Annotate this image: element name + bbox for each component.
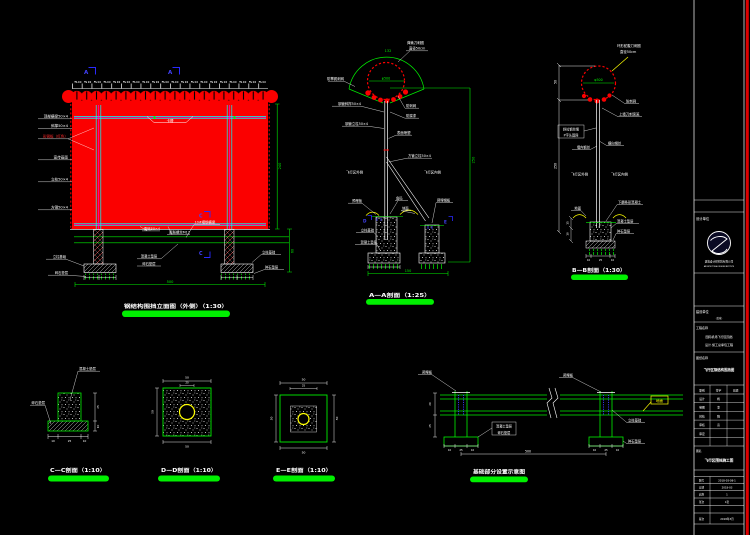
cc-label-gravel: 碎石垫层 [31,400,45,405]
sheet-border-red [746,0,749,535]
plan-fdim-3: 10 [471,448,475,452]
title-block: 设计单位 建筑设计研究院有限公司 ARCHITECTURAL DESIGN IN… [694,0,744,535]
plan-title-bar [470,477,528,483]
company-name: 建筑设计研究院有限公司 [705,260,734,264]
sign-row-value: 程 [717,414,720,418]
aa-label-outside: 飞行区外侧 [346,170,364,175]
label-channel-beam: 10#槽钢横梁 [195,220,216,225]
section-aa-drawing: 132 φ500 弹簧刀刺圈 直径50cm 防攀爬刺网 钢管斜撑50×4 钢管立… [327,40,475,305]
ee-right-value: 50 [335,417,339,421]
plan-fdim-5: 25 [604,448,608,452]
depth-dim-value: 60 [291,249,295,253]
sign-row-label: 设计 [699,397,705,401]
project-name-2: 设计·施工总承包工程 [705,342,733,347]
plan-vdim-1: 20 [428,402,432,406]
aa-pier-left [376,217,397,253]
aa-height-value: 250 [472,157,476,164]
design-unit-label: 设计单位 [696,216,710,221]
ee-title-bar [273,476,335,482]
client-sub: （盖章） [714,316,724,320]
plan-title: 基础部分设置示意图 [472,469,525,476]
ee-left-value: 50 [270,417,274,421]
aa-label-square-post: 方管立柱50×4 [408,153,431,158]
bb-label-thorn: 防刺网 [626,99,637,104]
section-marker-a2: A [168,70,173,76]
cc-bdim-1: 10 [51,439,55,443]
bb-label-wire-left: 墙内钢丝 [577,145,591,150]
plan-anchor-bolts [459,395,609,415]
meta-value: 2018-03 [722,486,733,490]
sheet-name-label: 图名 [696,449,702,453]
bb-dim-height: 250 [554,163,558,169]
label-steel-sheet: 彩钢板（红色） [43,134,68,139]
bb-label-ground: 地面 [574,206,581,211]
aa-title: A—A剖面（1:25） [369,292,431,299]
bb-coil-label-2: 直径50cm [620,49,637,54]
meta-label: 图号 [699,479,705,483]
plan-fdim-4: 10 [593,448,597,452]
plan-label-pad: 混凝土垫层 [496,424,512,429]
aa-label-inside: 飞行区内侧 [424,170,442,175]
label-corner-brace: 角码50×4 [144,226,160,231]
cc-title-bar [48,476,109,482]
cc-rdim-1: 25 [96,405,100,409]
bb-earth-ticks [586,249,615,255]
aa-label-pipe-post: 钢管立柱50×4 [345,121,368,126]
coil-end-left [62,90,75,103]
dd-inner-value: 20 [185,380,189,384]
rail-clip-1 [154,116,156,119]
sign-th-2: 签字 [716,389,722,393]
section-marker-c2-bracket [204,252,210,258]
aa-label-embed-right: 预埋钢板 [437,198,451,203]
bb-pier [590,222,611,241]
sign-row-label: 校核 [699,414,705,418]
ee-inner-dim [290,387,317,390]
meta-value: 1张 [725,500,730,504]
aa-label-embed-left: 预埋板 [352,198,363,203]
detail-ee-drawing: 50 25 50 50 50 E—E剖面（1:10） [270,378,340,482]
plan-label-gravel: 碎石垫层 [498,430,511,435]
elevation-title-bar [122,311,230,318]
cc-label-pad: 混凝土垫层 [79,366,97,371]
bb-label-outside: 飞行区外侧 [571,172,589,177]
label-footing-right: 立柱基础 [262,250,276,255]
aa-slab-right [419,253,445,263]
dd-pole-hole [180,405,195,420]
earth-ticks-left [84,274,116,280]
foundation-plan-drawing: 地面 预埋板 预埋板 混凝土垫层 碎石垫层 立柱基础 碎石垫层 20 25 10… [418,370,683,483]
label-gravel-right: 碎石垫层 [265,265,279,270]
ee-bottom-dim [280,446,327,450]
aa-marker-e: E [444,220,447,225]
coil-wire-dots [365,89,408,103]
bb-wire-box-leader [584,128,596,131]
bb-title: B—B剖面（1:30） [572,267,626,274]
aa-marker-e-bracket [449,217,453,222]
aa-earth-ticks-left [368,264,400,270]
plan-total-dim [461,452,606,456]
bb-dim-top: 50 [554,80,558,84]
detail-dd-drawing: 50 20 50 50 D—D剖面（1:10） [151,376,221,482]
elevation-drawing: 50 50 50 50 50 50 50 50 50 50 50 50 50 5… [38,68,295,318]
aa-label-pad: 混凝土垫层 [361,240,378,245]
footing-right [221,264,253,273]
plan-pad-dims [444,444,623,448]
plan-left-dims [433,393,437,437]
aa-slab-left [368,253,400,263]
section-marker-a1-bracket [89,68,96,75]
section-marker-c1: C [199,214,203,220]
label-concrete-pad: 混凝土垫层 [141,254,158,259]
ee-bottom-value: 50 [302,451,306,455]
slot-callout-label: 卡槽 [167,118,174,123]
bb-label-gravel: 碎石垫层 [617,229,631,234]
sign-th-1: 职别 [699,389,705,393]
coil-end-right [265,90,278,103]
plan-pad-leader [478,428,492,437]
aa-pier-right [425,225,439,253]
section-bb-drawing: φ500 环形蛇腹刀刺圈 直径50cm 50 250 防刺网 上墙刀刺滚笼 斜拉… [554,43,644,280]
aa-label-thorn: 防刺网 [406,103,417,108]
plan-posts [455,391,612,437]
aa-coil-label-2: 直径50cm [409,46,426,51]
dd-title-bar [158,476,220,482]
ee-top-value: 50 [302,378,306,382]
meta-value: 1 [726,493,728,497]
rail-clip-2 [234,116,236,119]
razor-coil-scallops [72,90,268,103]
dd-bottom-dim [163,440,211,444]
plan-fdim-1: 10 [448,448,452,452]
label-brace: 斜撑50×4 [51,123,69,128]
company-name-en: ARCHITECTURAL DESIGN INSTITUTE [704,265,734,268]
meta-label: 张次 [699,500,705,504]
label-anchor-bolt: 膨胀螺丝M12 [169,230,190,235]
client-label: 建设单位 [696,309,710,314]
meta-label: 比例 [699,493,705,497]
bb-label-inside: 飞行区内侧 [611,172,629,177]
section-marker-a2-bracket [173,68,180,75]
bb-bdim-1: 10 [587,258,591,262]
plan-total-value: 500 [525,450,531,454]
dd-left-dim [155,388,159,436]
bb-wire-box-1: 斜拉钢丝绳 [563,127,580,132]
aa-label-ground: 地面 [402,206,409,211]
aa-marker-d: D [363,219,367,224]
cad-canvas: 50 50 50 50 50 50 50 50 50 50 50 50 50 5… [0,0,750,535]
bb-wire-box-2: P字头固网 [564,132,579,137]
bb-label-wire-right: 横向钢丝 [608,141,622,146]
bb-slab [586,241,615,248]
cc-bdim-2: 25 [68,439,72,443]
aa-label-paint: 防腐漆 [406,113,417,118]
drawing-name-label: 图纸名称 [696,355,708,360]
plan-label-gravel2: 碎石垫层 [628,439,642,444]
plan-embed-right-leader [559,378,601,392]
aa-label-coating: 表面喷塑 [397,130,411,135]
dd-title: D—D剖面（1:10） [161,467,217,474]
found-label-leaders-4 [252,255,284,274]
aa-total-value: 150 [405,269,411,273]
plan-footing-left [444,437,478,446]
section-marker-a1: A [84,70,89,76]
plan-fdim-6: 10 [616,448,620,452]
plan-embed-left-leader [418,375,456,391]
aa-marker-d-bracket [368,216,372,221]
plan-rails [440,395,683,415]
sign-th-3: 日期 [733,389,739,393]
aa-brace [387,157,430,221]
plan-label-footing: 立柱基础 [628,418,642,423]
aa-label-climb: 防攀爬刺网 [327,76,345,81]
bb-found-dim-1: 15 [566,221,570,225]
meta-rows: 图号 2018-03-08-1 日期 2018-03 比例 1 张次 1张 版次… [699,479,736,522]
bb-pole [597,100,600,228]
aa-label-footing: 立柱基础 [361,228,375,233]
top-dim-row: 50 50 50 50 50 50 50 50 50 50 50 50 50 5… [74,80,266,84]
pier-right [225,230,235,265]
detail-cc-drawing: 混凝土垫层 碎石垫层 10 25 10 25 10 C—C剖面（1:10） [30,366,109,482]
plan-footing-right [589,437,623,446]
label-square-steel: 方钢50×4 [51,205,69,210]
project-name-1: 国际机场飞行区围挡 [705,334,732,339]
panel-height-value: 240 [278,163,282,170]
bb-dia-value: φ500 [594,78,602,82]
cc-bdim-3: 10 [83,439,87,443]
dd-bottom-value: 50 [185,445,189,449]
bb-title-bar [571,275,628,281]
bb-label-cage: 上墙刀刺滚笼 [619,112,640,117]
sign-row-value: 高 [717,423,720,427]
elevation-title: 钢结构围挡立面图（外侧）（1:30） [124,303,228,310]
sign-row-label: 审定 [699,432,705,436]
sign-row-value: 李 [717,406,720,410]
sign-row-value: 杨 [717,397,720,401]
aa-dia-value: φ500 [382,77,390,81]
bb-found-dims [569,216,573,243]
dd-top-value: 50 [185,376,189,380]
ee-title: E—E剖面（1:10） [276,467,332,474]
label-gravel-left: 碎石垫层 [55,270,69,275]
aa-coil-label-1: 弹簧刀刺圈 [407,40,425,45]
plan-ground-leader [643,402,651,411]
aa-label-corner: 角码 [396,196,403,201]
aa-earth-ticks-right [419,264,445,270]
footing-left [84,264,116,273]
bb-found-dim-2: 10 [566,232,570,236]
sign-row-label: 制图 [699,406,705,410]
company-logo [708,232,731,255]
bb-bdim-2: 25 [599,258,603,262]
cc-strip [48,421,88,431]
sign-row-label: 审核 [699,423,705,427]
aa-label-brace: 钢管斜撑50×4 [338,101,361,106]
plan-vdim-2: 25 [428,424,432,428]
sheet-name: 飞行区围挡施工图 [705,458,734,463]
ee-inner-value: 25 [302,383,306,387]
cc-block [58,393,81,421]
ee-left-dim [274,395,278,442]
ground-beam [74,237,289,243]
label-footing-left: 立柱基础 [53,254,67,259]
label-post: 立柱50×4 [51,177,69,182]
dd-inner-dim [180,384,194,387]
label-top-beam: 顶部横梁50×4 [44,114,69,119]
aa-title-bar [366,299,434,305]
label-gravel-pad: 碎石垫层 [142,261,156,266]
bb-bdim-3: 10 [611,258,615,262]
bb-label-strip: 下翻条形混凝土 [618,200,642,205]
cc-rdim-2: 10 [96,425,100,429]
label-banner: 宣传画面 [54,155,69,160]
meta-label: 日期 [699,486,705,490]
ee-pole-hole [298,414,309,425]
dd-left-value: 50 [151,410,155,414]
dim-ticks [72,84,268,89]
cad-drawing-sheet: 50 50 50 50 50 50 50 50 50 50 50 50 50 5… [0,0,750,535]
plan-label-embed-right: 预埋板 [563,373,574,378]
meta-value: 2018年3月 [720,517,734,521]
plan-label-embed-left: 预埋板 [422,370,433,375]
cc-title: C—C剖面（1:10） [50,467,106,474]
plan-fdim-2: 25 [459,448,463,452]
drawing-name: 飞行区钢结构围挡图 [704,367,735,372]
aa-arc-dim: 132 [385,49,392,53]
project-label: 工程名称 [696,325,708,330]
meta-value: 2018-03-08-1 [718,479,736,483]
plan-ground-label: 地面 [656,398,664,403]
pier-left [94,230,104,265]
bb-label-pad: 混凝土垫层 [617,219,634,224]
bb-coil-leader [612,57,628,71]
meta-label: 版次 [699,517,705,521]
total-dim-value: 500 [167,280,175,284]
bb-coil-label-1: 环形蛇腹刀刺圈 [617,43,641,48]
section-marker-c2: C [199,251,203,257]
